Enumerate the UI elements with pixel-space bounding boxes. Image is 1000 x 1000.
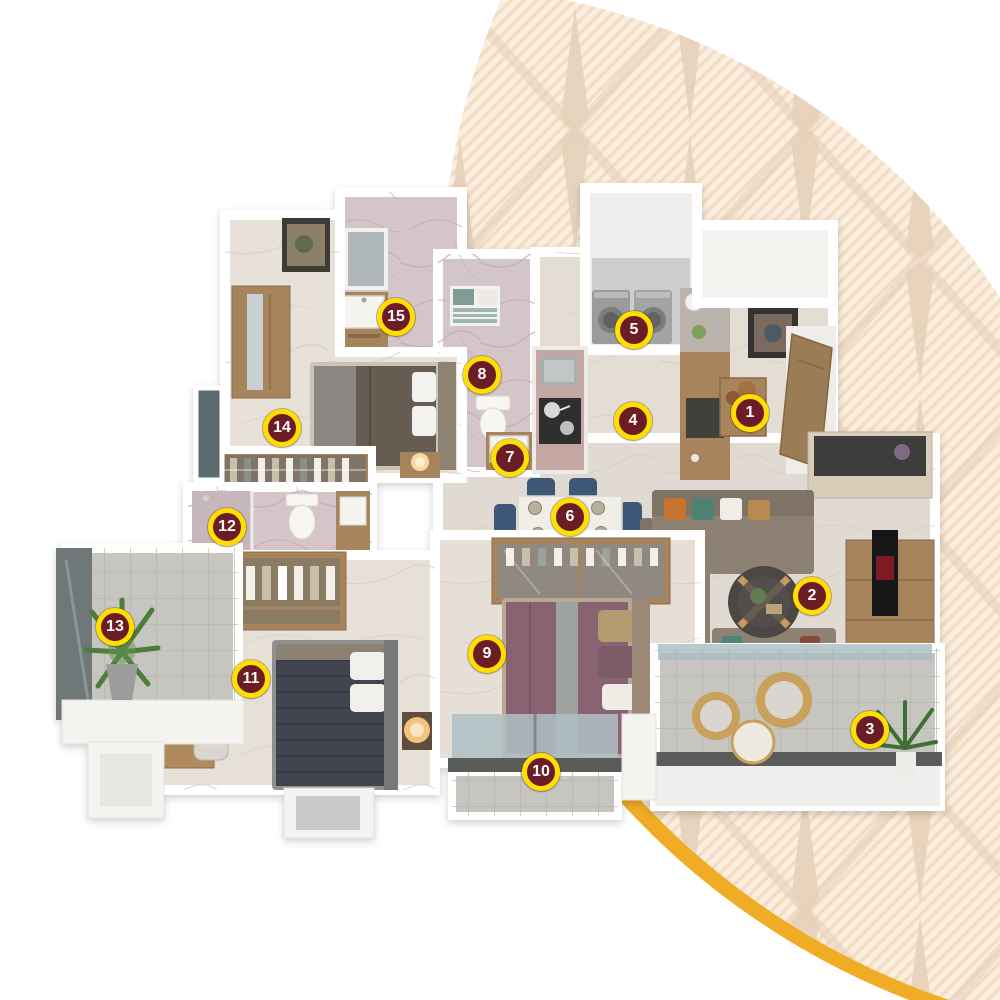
marker-3[interactable]: 3 bbox=[851, 711, 889, 749]
marker-11[interactable]: 11 bbox=[232, 660, 270, 698]
marker-1[interactable]: 1 bbox=[731, 394, 769, 432]
marker-14[interactable]: 14 bbox=[263, 409, 301, 447]
markers-layer: 123456789101112131415 bbox=[0, 0, 1000, 1000]
marker-8[interactable]: 8 bbox=[463, 356, 501, 394]
marker-9[interactable]: 9 bbox=[468, 635, 506, 673]
marker-13[interactable]: 13 bbox=[96, 608, 134, 646]
marker-2[interactable]: 2 bbox=[793, 577, 831, 615]
marker-5[interactable]: 5 bbox=[615, 311, 653, 349]
marker-15[interactable]: 15 bbox=[377, 298, 415, 336]
marker-10[interactable]: 10 bbox=[522, 753, 560, 791]
marker-4[interactable]: 4 bbox=[614, 402, 652, 440]
marker-6[interactable]: 6 bbox=[551, 498, 589, 536]
floorplan-page: 123456789101112131415 bbox=[0, 0, 1000, 1000]
marker-12[interactable]: 12 bbox=[208, 508, 246, 546]
marker-7[interactable]: 7 bbox=[491, 439, 529, 477]
